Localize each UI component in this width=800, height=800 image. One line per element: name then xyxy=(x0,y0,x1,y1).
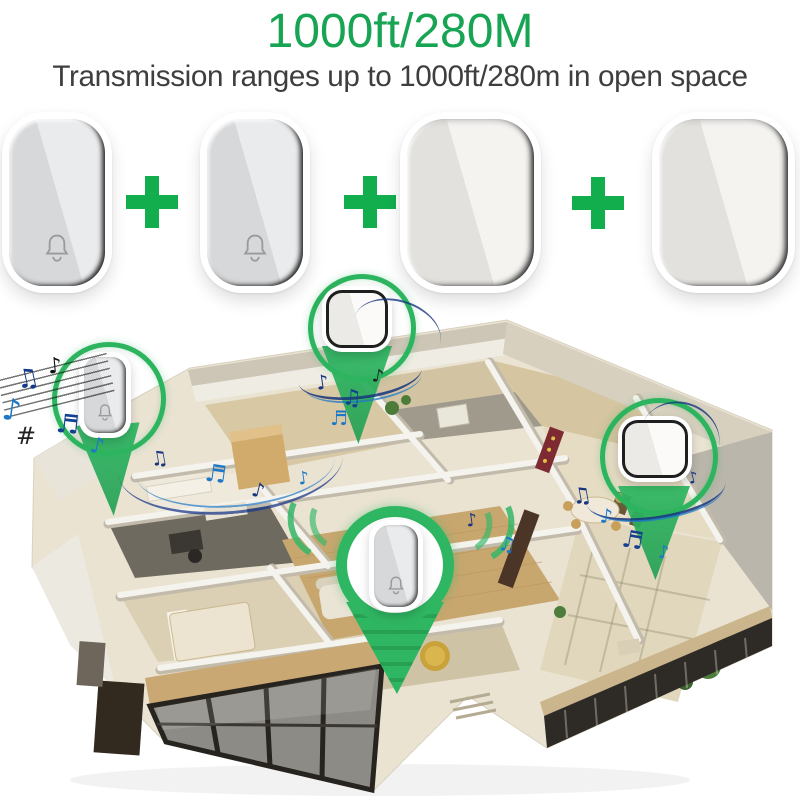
chime-receiver-marker-right xyxy=(618,416,692,482)
music-note-icon: ♪ xyxy=(658,544,670,562)
sharp-icon: # xyxy=(16,424,36,448)
receiver-face xyxy=(622,420,688,478)
music-note-icon: ♬ xyxy=(203,461,228,488)
music-note-icon: ♫ xyxy=(570,484,593,509)
music-note-icon: ♫ xyxy=(148,447,169,470)
music-note-icon: ♪ xyxy=(465,511,479,530)
chime-receiver-marker-top xyxy=(322,286,392,352)
music-note-icon: ♪ xyxy=(315,371,330,393)
music-note-icon: ♬ xyxy=(620,526,645,553)
music-note-icon: ♫ xyxy=(497,533,518,555)
receiver-face xyxy=(326,290,388,348)
bell-icon xyxy=(385,574,407,603)
music-note-icon: ♪ xyxy=(599,505,614,526)
music-note-icon: ♫ xyxy=(14,364,42,394)
product-infographic: 1000ft/280M Transmission ranges up to 10… xyxy=(0,0,800,800)
music-note-icon: ♬ xyxy=(55,411,81,439)
doorbell-button-marker-center xyxy=(369,520,423,612)
bell-icon xyxy=(95,402,115,429)
music-note-icon: ♪ xyxy=(47,355,63,378)
music-note-icon: ♪ xyxy=(297,469,311,488)
music-note-icon: ♬ xyxy=(330,408,348,428)
